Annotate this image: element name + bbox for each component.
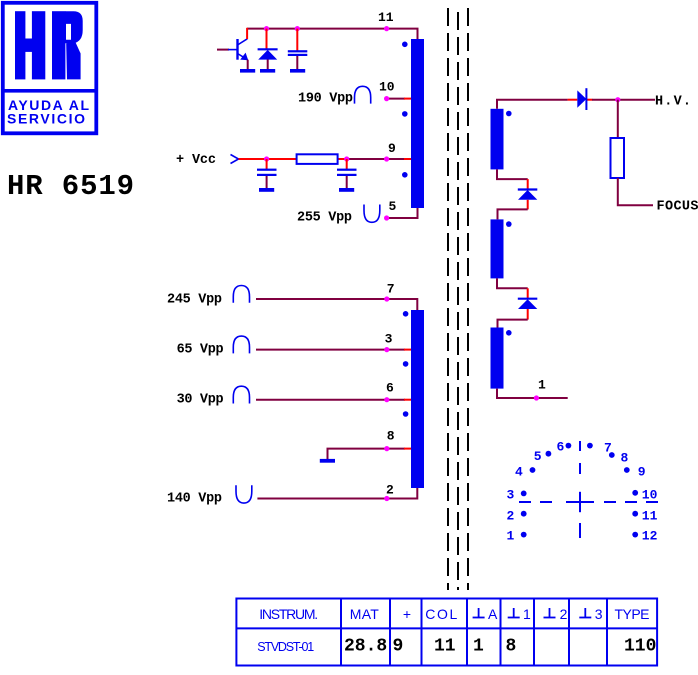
svg-text:5: 5 xyxy=(534,449,542,464)
svg-text:255 Vpp: 255 Vpp xyxy=(297,211,352,226)
svg-text:10: 10 xyxy=(379,80,395,95)
svg-text:STVDST-01: STVDST-01 xyxy=(257,640,314,654)
svg-text:1: 1 xyxy=(473,637,484,657)
svg-text:1: 1 xyxy=(538,378,546,393)
svg-text:140 Vpp: 140 Vpp xyxy=(167,492,222,507)
svg-text:28.8: 28.8 xyxy=(344,637,387,657)
svg-text:9: 9 xyxy=(393,637,404,657)
svg-text:1: 1 xyxy=(507,528,515,543)
svg-text:HR 6519: HR 6519 xyxy=(7,170,134,203)
svg-text:+ Vcc: + Vcc xyxy=(176,153,216,168)
svg-text:6: 6 xyxy=(386,381,394,396)
svg-text:65 Vpp: 65 Vpp xyxy=(177,343,224,358)
svg-text:TYPE: TYPE xyxy=(615,606,650,622)
svg-text:3: 3 xyxy=(595,606,603,622)
svg-text:6: 6 xyxy=(557,440,565,455)
svg-text:SERVICIO: SERVICIO xyxy=(7,111,85,127)
svg-text:10: 10 xyxy=(642,488,658,503)
svg-text:MAT: MAT xyxy=(350,606,379,622)
svg-text:INSTRUM.: INSTRUM. xyxy=(259,606,318,622)
svg-text:A: A xyxy=(488,606,498,622)
svg-text:1: 1 xyxy=(523,606,531,622)
svg-text:9: 9 xyxy=(638,465,646,480)
svg-text:5: 5 xyxy=(389,199,397,214)
svg-text:3: 3 xyxy=(507,488,515,503)
svg-text:FOCUS: FOCUS xyxy=(657,200,698,215)
svg-text:12: 12 xyxy=(642,528,658,543)
svg-text:11: 11 xyxy=(642,508,658,523)
svg-text:9: 9 xyxy=(388,141,396,156)
svg-text:8: 8 xyxy=(506,637,517,657)
svg-text:11: 11 xyxy=(378,10,394,25)
svg-text:2: 2 xyxy=(560,606,568,622)
svg-text:COL: COL xyxy=(425,606,457,622)
svg-text:4: 4 xyxy=(515,465,523,480)
svg-text:2: 2 xyxy=(386,483,394,498)
svg-text:8: 8 xyxy=(387,429,395,444)
svg-text:110: 110 xyxy=(624,637,656,657)
svg-text:245 Vpp: 245 Vpp xyxy=(167,293,222,308)
svg-text:190 Vpp: 190 Vpp xyxy=(298,92,353,107)
svg-text:7: 7 xyxy=(387,281,395,296)
svg-text:H.V.: H.V. xyxy=(655,94,691,109)
svg-text:7: 7 xyxy=(604,441,612,456)
svg-text:3: 3 xyxy=(385,331,393,346)
svg-text:+: + xyxy=(403,606,411,622)
svg-text:11: 11 xyxy=(434,637,456,657)
svg-text:2: 2 xyxy=(507,508,515,523)
svg-text:8: 8 xyxy=(621,451,629,466)
svg-text:30 Vpp: 30 Vpp xyxy=(177,393,224,408)
